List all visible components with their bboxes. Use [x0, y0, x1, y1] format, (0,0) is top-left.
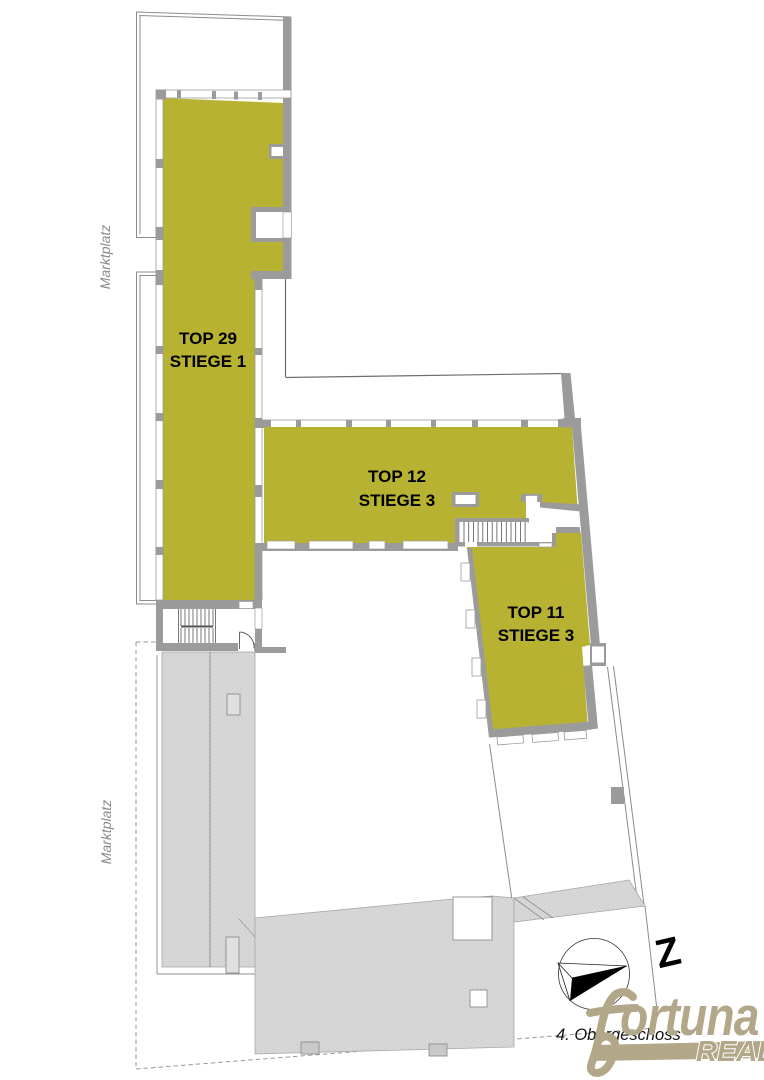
svg-text:TOP 29: TOP 29: [179, 329, 237, 348]
svg-text:REAL: REAL: [696, 1036, 764, 1068]
svg-text:STIEGE 3: STIEGE 3: [498, 626, 575, 645]
svg-text:TOP 11: TOP 11: [507, 603, 564, 622]
svg-text:TOP 12: TOP 12: [368, 467, 426, 486]
svg-text:Marktplatz: Marktplatz: [97, 225, 113, 290]
svg-text:Marktplatz: Marktplatz: [98, 800, 114, 865]
svg-text:STIEGE 1: STIEGE 1: [170, 352, 247, 371]
svg-text:STIEGE 3: STIEGE 3: [359, 491, 436, 510]
